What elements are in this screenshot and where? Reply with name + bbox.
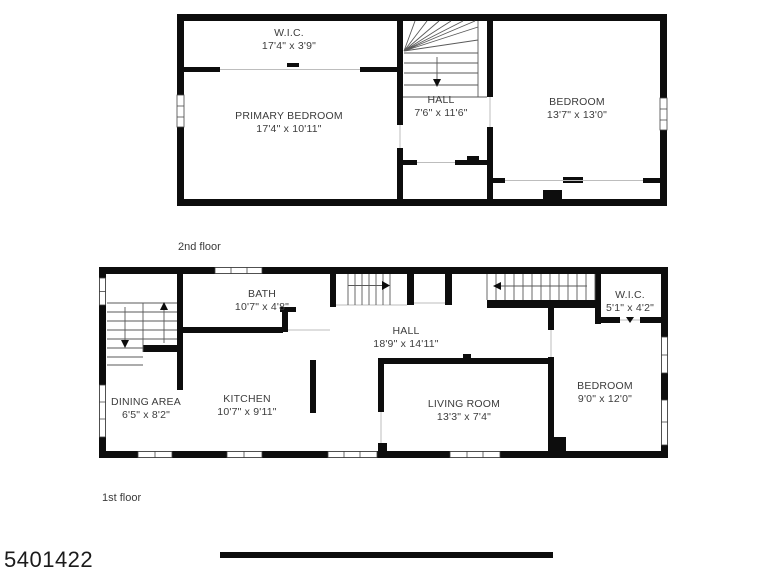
room-label-bedroom-1st: BEDROOM 9'0" x 12'0" — [577, 380, 633, 406]
chimney — [543, 190, 562, 201]
chimney — [550, 437, 566, 451]
room-dims: 5'1" x 4'2" — [606, 302, 654, 315]
room-name: DINING AREA — [111, 396, 181, 409]
room-name: W.I.C. — [606, 289, 654, 302]
stair-direction-arrow-left-icon — [493, 282, 501, 290]
staircase-2nd — [403, 21, 487, 97]
room-label-primary-bedroom: PRIMARY BEDROOM 17'4" x 10'11" — [235, 110, 343, 136]
room-name: KITCHEN — [217, 393, 276, 406]
room-dims: 6'5" x 8'2" — [111, 409, 181, 422]
window — [227, 452, 262, 458]
window — [660, 98, 667, 130]
room-dims: 17'4" x 3'9" — [262, 40, 316, 53]
room-name: HALL — [414, 94, 467, 107]
room-label-wic-1st: W.I.C. 5'1" x 4'2" — [606, 289, 654, 315]
room-dims: 13'3" x 7'4" — [428, 411, 500, 424]
room-dims: 10'7" x 9'11" — [217, 406, 276, 419]
room-dims: 7'6" x 11'6" — [414, 107, 467, 120]
room-label-hall-2nd: HALL 7'6" x 11'6" — [414, 94, 467, 120]
window — [662, 337, 668, 373]
room-label-bath: BATH 10'7" x 4'8" — [235, 288, 289, 314]
room-label-kitchen: KITCHEN 10'7" x 9'11" — [217, 393, 276, 419]
room-name: BEDROOM — [547, 96, 607, 109]
staircase-small — [348, 274, 390, 305]
room-name: LIVING ROOM — [428, 398, 500, 411]
room-label-bedroom-2nd: BEDROOM 13'7" x 13'0" — [547, 96, 607, 122]
window — [215, 268, 262, 274]
scale-bar — [220, 552, 553, 558]
room-dims: 17'4" x 10'11" — [235, 123, 343, 136]
floor-plan-page: W.I.C. 17'4" x 3'9" PRIMARY BEDROOM 17'4… — [0, 0, 768, 576]
plan-1st-floor-drawing — [97, 265, 671, 461]
window — [450, 452, 500, 458]
room-label-dining-area: DINING AREA 6'5" x 8'2" — [111, 396, 181, 422]
room-label-hall-1st: HALL 18'9" x 14'11" — [373, 325, 438, 351]
room-dims: 9'0" x 12'0" — [577, 393, 633, 406]
interior-walls — [143, 274, 661, 458]
room-dims: 18'9" x 14'11" — [373, 338, 438, 351]
window — [177, 95, 184, 127]
room-name: BEDROOM — [577, 380, 633, 393]
room-label-wic-2nd: W.I.C. 17'4" x 3'9" — [262, 27, 316, 53]
window — [662, 400, 668, 445]
window — [328, 452, 377, 458]
watermark-id: 5401422 — [4, 547, 93, 573]
room-dims: 10'7" x 4'8" — [235, 301, 289, 314]
floor-label-1st: 1st floor — [102, 492, 141, 504]
room-name: BATH — [235, 288, 289, 301]
window — [100, 385, 106, 437]
window — [138, 452, 172, 458]
window — [100, 278, 106, 305]
staircase-main — [107, 302, 177, 365]
room-label-living-room: LIVING ROOM 13'3" x 7'4" — [428, 398, 500, 424]
room-name: W.I.C. — [262, 27, 316, 40]
room-name: PRIMARY BEDROOM — [235, 110, 343, 123]
stair-direction-arrow-down-icon — [121, 340, 129, 348]
floor-label-2nd: 2nd floor — [178, 241, 221, 253]
room-name: HALL — [373, 325, 438, 338]
staircase-long — [487, 274, 595, 300]
room-dims: 13'7" x 13'0" — [547, 109, 607, 122]
plan-1st-floor — [97, 265, 671, 461]
stair-direction-arrow-down-icon — [433, 79, 441, 87]
stair-direction-arrow-right-icon — [382, 281, 390, 290]
